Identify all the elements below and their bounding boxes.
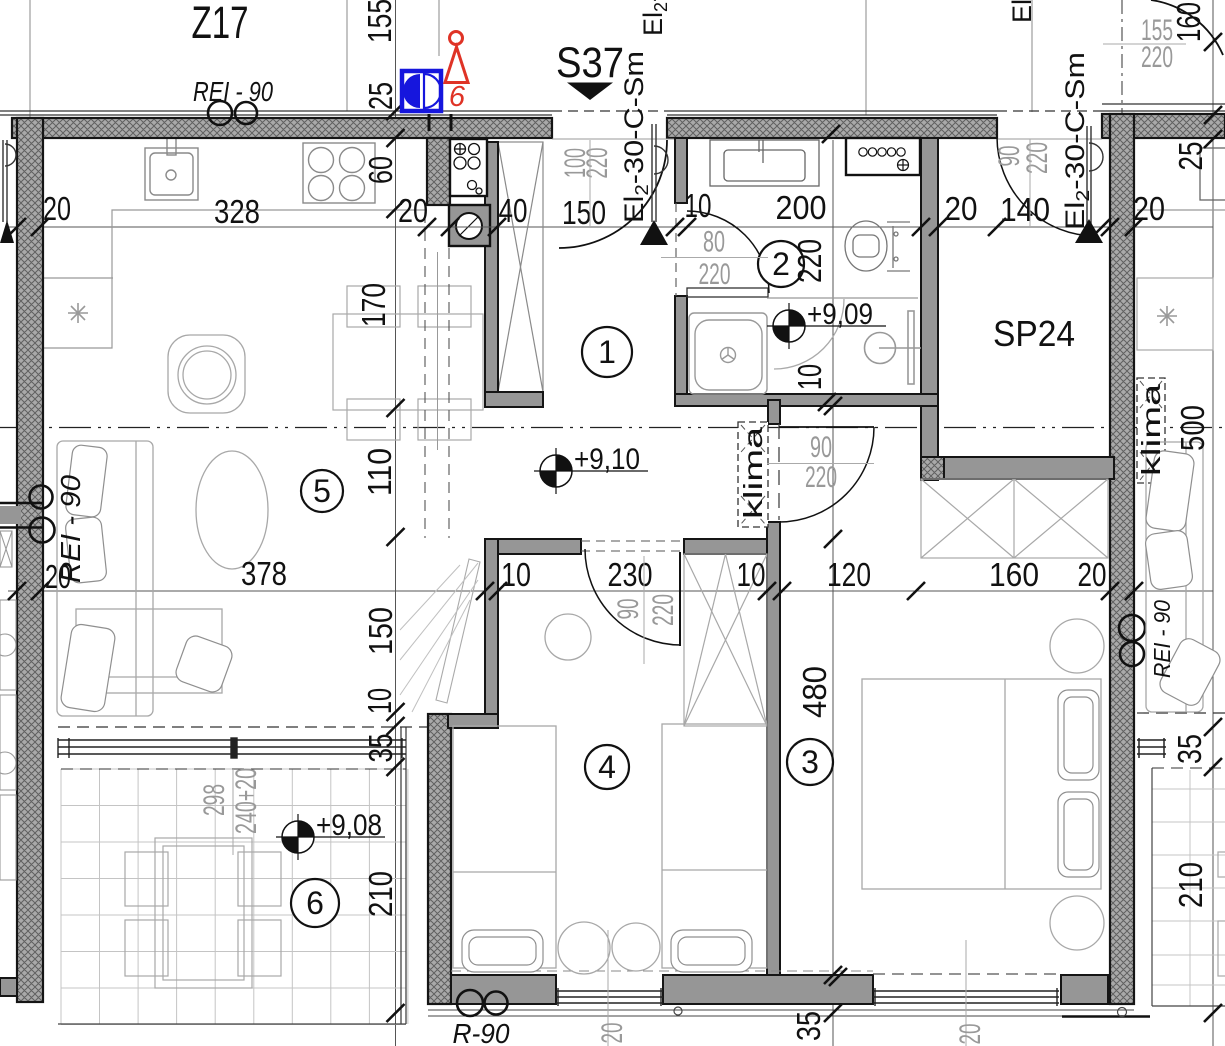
svg-text:20: 20 xyxy=(1133,190,1165,227)
svg-text:150: 150 xyxy=(362,607,399,655)
svg-text:10: 10 xyxy=(361,688,398,714)
svg-text:10: 10 xyxy=(501,556,531,593)
svg-text:2: 2 xyxy=(772,246,790,282)
svg-text:210: 210 xyxy=(1172,862,1209,908)
svg-text:328: 328 xyxy=(214,193,260,230)
svg-text:500: 500 xyxy=(1174,405,1211,451)
svg-text:4: 4 xyxy=(598,749,616,785)
svg-text:10: 10 xyxy=(737,556,766,593)
svg-text:220: 220 xyxy=(647,594,680,626)
svg-text:5: 5 xyxy=(313,473,331,509)
svg-text:80: 80 xyxy=(703,226,725,259)
svg-text:220: 220 xyxy=(1141,41,1173,74)
svg-text:120: 120 xyxy=(827,556,871,593)
svg-text:60: 60 xyxy=(362,156,399,184)
svg-text:10: 10 xyxy=(791,364,828,390)
svg-text:+9,08: +9,08 xyxy=(316,809,382,842)
svg-text:El2-3: El2-3 xyxy=(1007,0,1040,23)
svg-text:140: 140 xyxy=(1000,191,1050,228)
svg-text:220: 220 xyxy=(581,148,614,179)
svg-text:25: 25 xyxy=(362,82,399,110)
svg-text:6: 6 xyxy=(449,81,466,113)
svg-text:20: 20 xyxy=(45,558,71,595)
svg-text:35: 35 xyxy=(790,1011,827,1041)
svg-text:Z17: Z17 xyxy=(192,0,249,48)
svg-text:160: 160 xyxy=(1170,2,1207,42)
svg-text:240+20: 240+20 xyxy=(230,768,263,834)
svg-text:35: 35 xyxy=(1171,734,1208,764)
svg-text:20: 20 xyxy=(954,1024,987,1045)
svg-text:20: 20 xyxy=(596,1023,629,1044)
svg-text:25: 25 xyxy=(1172,142,1209,171)
svg-text:REI - 90: REI - 90 xyxy=(1149,600,1175,678)
svg-text:REI - 90: REI - 90 xyxy=(193,76,273,107)
svg-text:3: 3 xyxy=(801,744,819,780)
svg-text:klima: klima xyxy=(1136,383,1166,476)
svg-text:+9,09: +9,09 xyxy=(807,298,873,331)
svg-text:El2-30-C-Sm: El2-30-C-Sm xyxy=(1060,52,1093,230)
svg-text:S37: S37 xyxy=(556,39,624,87)
svg-text:378: 378 xyxy=(241,555,287,592)
svg-text:200: 200 xyxy=(776,189,827,226)
svg-text:20: 20 xyxy=(1078,556,1107,593)
svg-text:480: 480 xyxy=(796,666,833,718)
svg-text:298: 298 xyxy=(198,784,231,816)
svg-text:6: 6 xyxy=(306,885,324,921)
svg-text:155: 155 xyxy=(361,0,398,43)
svg-text:220: 220 xyxy=(699,258,731,291)
svg-text:El2-30-C-Sm: El2-30-C-Sm xyxy=(619,51,652,223)
svg-text:230: 230 xyxy=(608,556,653,593)
svg-text:+9,10: +9,10 xyxy=(574,443,640,476)
svg-text:10: 10 xyxy=(685,187,712,224)
svg-text:110: 110 xyxy=(361,448,398,496)
svg-text:90: 90 xyxy=(810,431,832,464)
svg-text:220: 220 xyxy=(1021,142,1054,174)
svg-text:40: 40 xyxy=(499,192,528,229)
svg-text:150: 150 xyxy=(562,194,606,231)
svg-text:20: 20 xyxy=(398,192,428,229)
svg-text:170: 170 xyxy=(355,283,392,327)
svg-text:220: 220 xyxy=(791,239,828,283)
svg-text:160: 160 xyxy=(989,556,1039,593)
svg-text:R-90: R-90 xyxy=(453,1018,510,1046)
svg-text:20: 20 xyxy=(945,190,978,227)
svg-text:220: 220 xyxy=(805,461,837,494)
svg-text:20: 20 xyxy=(43,190,71,227)
svg-text:SP24: SP24 xyxy=(993,313,1075,354)
svg-text:klima: klima xyxy=(738,426,768,519)
svg-text:35: 35 xyxy=(362,734,399,763)
svg-text:90: 90 xyxy=(612,599,645,620)
svg-text:210: 210 xyxy=(362,871,399,917)
svg-text:1: 1 xyxy=(598,334,616,370)
